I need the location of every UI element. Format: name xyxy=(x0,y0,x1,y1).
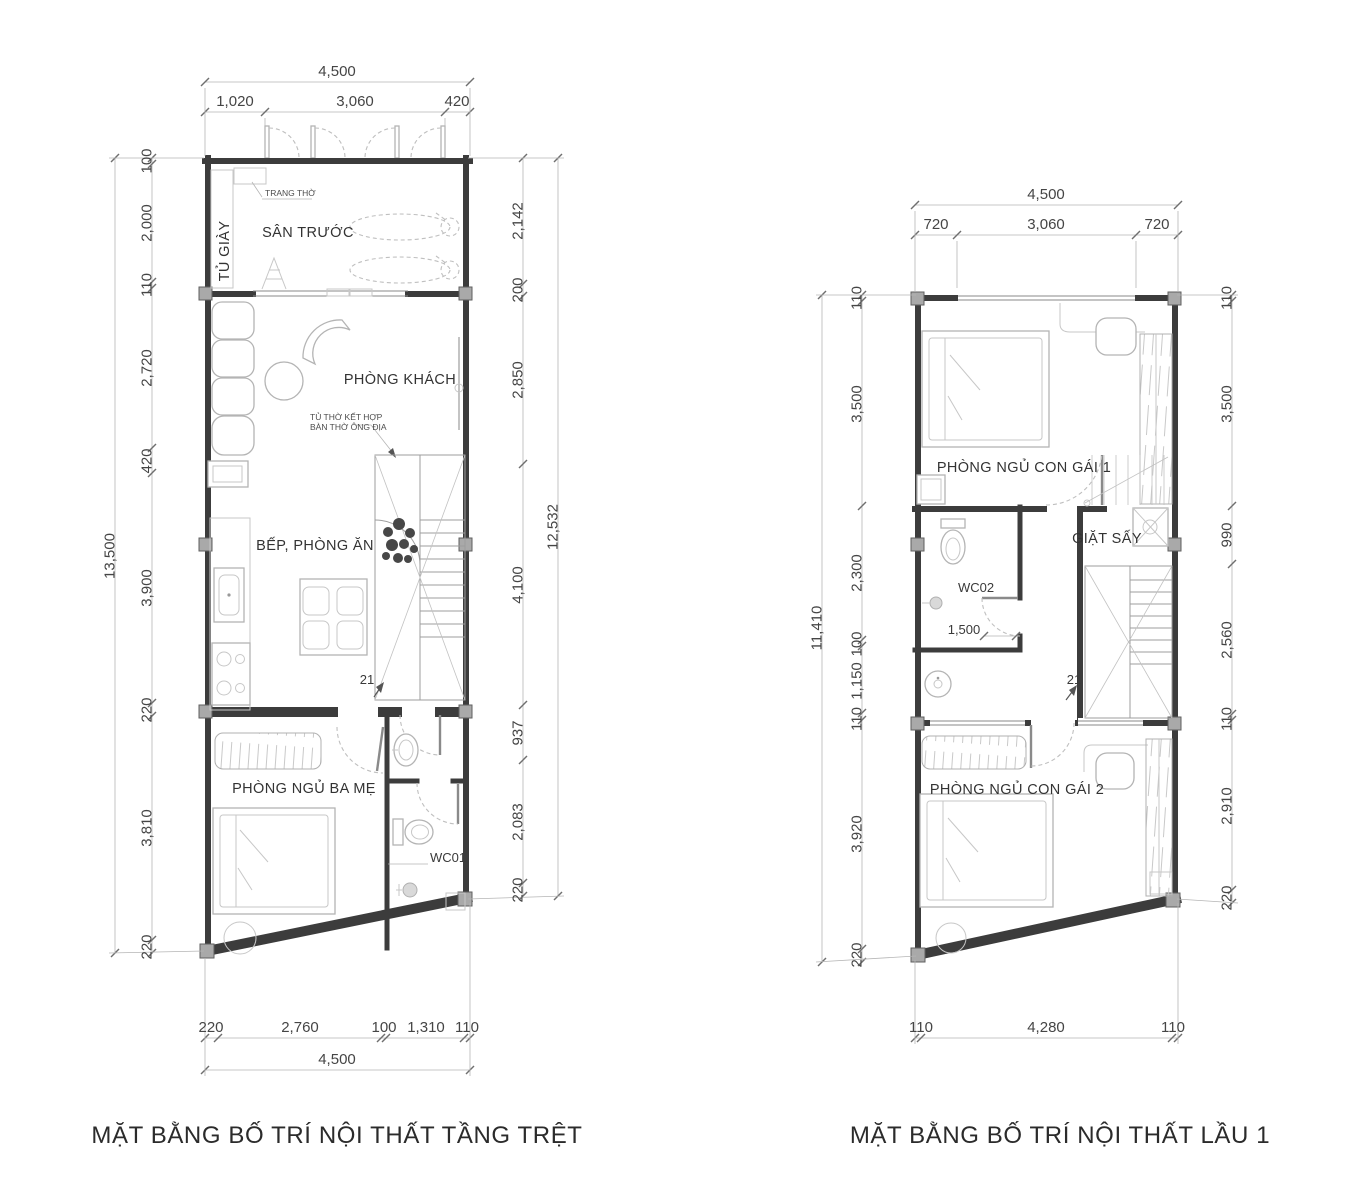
dim-left-seg: 110 xyxy=(848,286,865,310)
toilet-icon xyxy=(393,819,433,845)
dim-right-seg: 2,560 xyxy=(1218,621,1235,659)
wc02-door-icon xyxy=(982,598,1020,636)
wc02-fixtures xyxy=(922,519,1020,697)
room-label-laundry: GIẶT SẤY xyxy=(1072,530,1142,547)
room-label-front-yard: SÂN TRƯỚC xyxy=(262,224,354,241)
dim-top-seg: 3,060 xyxy=(1027,216,1065,233)
first-plan-title: MẶT BẰNG BỐ TRÍ NỘI THẤT LẦU 1 xyxy=(850,1121,1270,1149)
stairs xyxy=(374,455,465,700)
dim-bottom-seg: 110 xyxy=(1161,1019,1185,1036)
dim-right-total: 12,532 xyxy=(544,504,561,550)
ground-plan-title: MẶT BẰNG BỐ TRÍ NỘI THẤT TẦNG TRỆT xyxy=(91,1121,582,1149)
room-label-master: PHÒNG NGỦ BA MẸ xyxy=(232,779,376,797)
dim-left-seg: 100 xyxy=(848,631,865,656)
dim-right-seg: 3,500 xyxy=(1218,385,1235,423)
shoe-cabinet-label: TỦ GIÀY xyxy=(215,221,233,282)
wardrobe-icon xyxy=(922,736,1026,769)
dim-left-seg: 220 xyxy=(138,934,155,959)
tv-cabinet-icon xyxy=(208,461,248,487)
wc01-fixtures xyxy=(388,734,465,910)
dim-right-seg: 2,850 xyxy=(509,361,526,399)
dim-right-seg: 110 xyxy=(1218,286,1235,310)
dim-right-seg: 2,910 xyxy=(1218,787,1235,825)
dim-top-total: 4,500 xyxy=(1027,186,1065,203)
bath-sink-icon xyxy=(392,734,418,766)
shower-icon xyxy=(396,883,417,897)
floorplan-sheet: 4,500 1,020 3,060 420 220 2,760 100 1,31… xyxy=(0,0,1351,1200)
dim-bottom-seg: 220 xyxy=(198,1019,223,1036)
altar-shelf-label: TRANG THỜ xyxy=(265,188,316,198)
dim-left-seg: 2,000 xyxy=(138,204,155,242)
sofa-icon xyxy=(212,302,254,455)
dim-left-seg: 110 xyxy=(848,707,865,731)
dim-left-seg: 3,920 xyxy=(848,815,865,853)
entrance-gate-icon xyxy=(265,126,445,158)
dim-top-seg: 3,060 xyxy=(336,93,374,110)
living-window-icon xyxy=(455,337,463,430)
ground-floor-plan: 4,500 1,020 3,060 420 220 2,760 100 1,31… xyxy=(91,63,582,1149)
kitchen-counter-icon xyxy=(210,518,250,710)
dim-left-seg: 3,900 xyxy=(138,569,155,607)
room-label-wc01: WC01 xyxy=(430,850,466,865)
dim-left-seg: 100 xyxy=(138,148,155,173)
dim-left-seg: 3,500 xyxy=(848,385,865,423)
bed-icon xyxy=(920,794,1053,907)
dim-left-seg: 420 xyxy=(138,448,155,473)
dim-left-seg: 220 xyxy=(848,942,865,967)
bed-icon xyxy=(213,808,335,914)
dim-right-seg: 4,100 xyxy=(509,566,526,604)
armchair-icon xyxy=(303,320,350,364)
dim-bottom-seg: 2,760 xyxy=(281,1019,319,1036)
floorplan-drawing: 4,500 1,020 3,060 420 220 2,760 100 1,31… xyxy=(0,0,1351,1200)
bedroom2-door-icon xyxy=(1031,723,1074,768)
dim-left-seg: 1,150 xyxy=(848,662,865,700)
cabinet-icon xyxy=(917,475,945,504)
sink-icon xyxy=(214,568,244,622)
wc02-width-label: 1,500 xyxy=(948,622,981,637)
dim-top-seg: 720 xyxy=(1144,216,1169,233)
wc01-door-icon xyxy=(417,783,458,824)
desk-chair-icon xyxy=(1096,318,1136,355)
dim-right-seg: 200 xyxy=(509,277,526,302)
stair-step-label: 21 xyxy=(360,672,374,687)
bedroom-door-icon xyxy=(337,727,383,773)
dim-bottom-total: 4,500 xyxy=(318,1051,356,1068)
room-label-bedroom2: PHÒNG NGỦ CON GÁI 2 xyxy=(930,780,1104,798)
wardrobe-icon xyxy=(215,733,321,769)
room-label-living: PHÒNG KHÁCH xyxy=(344,371,456,388)
dim-left-seg: 2,720 xyxy=(138,349,155,387)
dim-bottom-seg: 110 xyxy=(909,1019,933,1036)
dim-right-seg: 2,142 xyxy=(509,202,526,240)
dim-left-seg: 2,300 xyxy=(848,554,865,592)
dim-top-seg: 420 xyxy=(444,93,469,110)
first-floor-plan: 4,500 720 3,060 720 110 4,280 110 110 3,… xyxy=(808,186,1270,1149)
dim-left-seg: 3,810 xyxy=(138,809,155,847)
dim-right-seg: 990 xyxy=(1218,522,1235,547)
room-label-kitchen: BẾP, PHÒNG ĂN xyxy=(256,537,374,554)
dim-top-seg: 1,020 xyxy=(216,93,254,110)
dim-right-seg: 2,083 xyxy=(509,803,526,841)
dim-left-seg: 220 xyxy=(138,697,155,722)
altar-cabinet-label-1: TỦ THỜ KẾT HỢP xyxy=(310,411,383,422)
coffee-table-icon xyxy=(265,362,303,400)
desk-icon xyxy=(1060,303,1145,355)
dim-bottom-seg: 110 xyxy=(455,1019,479,1036)
dim-right-seg: 220 xyxy=(1218,885,1235,910)
bed-icon xyxy=(922,331,1049,447)
altar-cabinet-label-2: BÀN THỜ ÔNG ĐỊA xyxy=(310,422,387,432)
dim-bottom-seg: 4,280 xyxy=(1027,1019,1065,1036)
shower-icon xyxy=(922,597,942,609)
dim-left-total: 13,500 xyxy=(101,533,118,579)
motorbike-icon xyxy=(350,213,459,283)
sink-icon xyxy=(925,671,951,697)
dim-bottom-seg: 1,310 xyxy=(407,1019,445,1036)
dim-bottom-seg: 100 xyxy=(371,1019,396,1036)
dining-table-icon xyxy=(300,579,367,655)
dim-left-total: 11,410 xyxy=(808,606,825,651)
dim-right-seg: 220 xyxy=(509,877,526,902)
dim-left-seg: 110 xyxy=(138,273,155,297)
dim-top-seg: 720 xyxy=(923,216,948,233)
dim-right-seg: 937 xyxy=(509,720,526,745)
dim-top-total: 4,500 xyxy=(318,63,356,80)
room-label-wc02: WC02 xyxy=(958,580,994,595)
dim-right-seg: 110 xyxy=(1218,707,1235,731)
stair-step-label: 21 xyxy=(1067,672,1081,687)
room-label-bedroom1: PHÒNG NGỦ CON GÁI 1 xyxy=(937,458,1111,476)
toilet-icon xyxy=(941,519,965,564)
ladder-icon xyxy=(262,258,286,289)
stove-icon xyxy=(212,643,250,705)
